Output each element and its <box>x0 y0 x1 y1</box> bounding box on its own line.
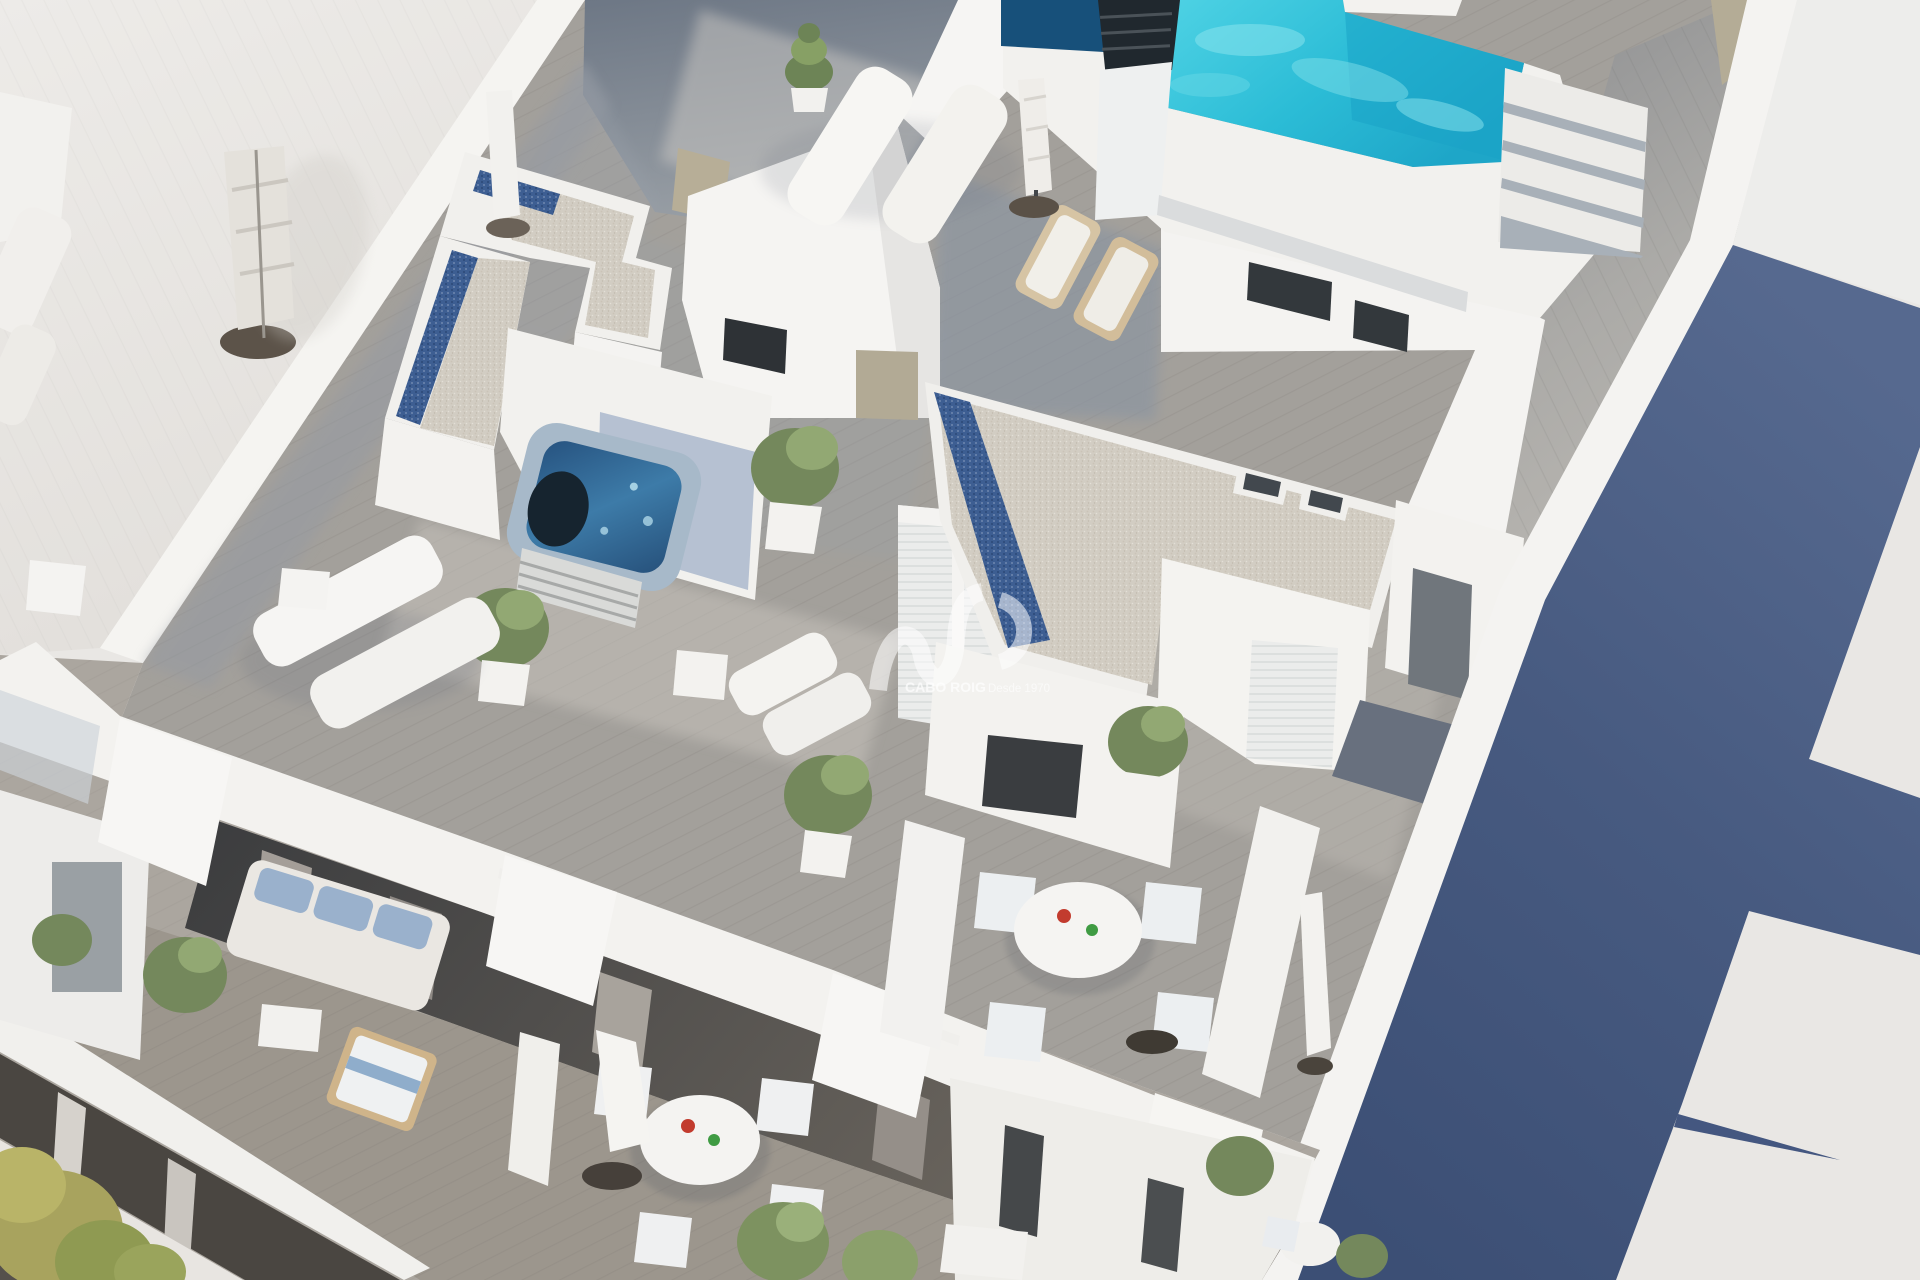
svg-text:Desde 1970: Desde 1970 <box>988 683 1050 695</box>
svg-text:CABO ROIG: CABO ROIG <box>905 679 986 695</box>
